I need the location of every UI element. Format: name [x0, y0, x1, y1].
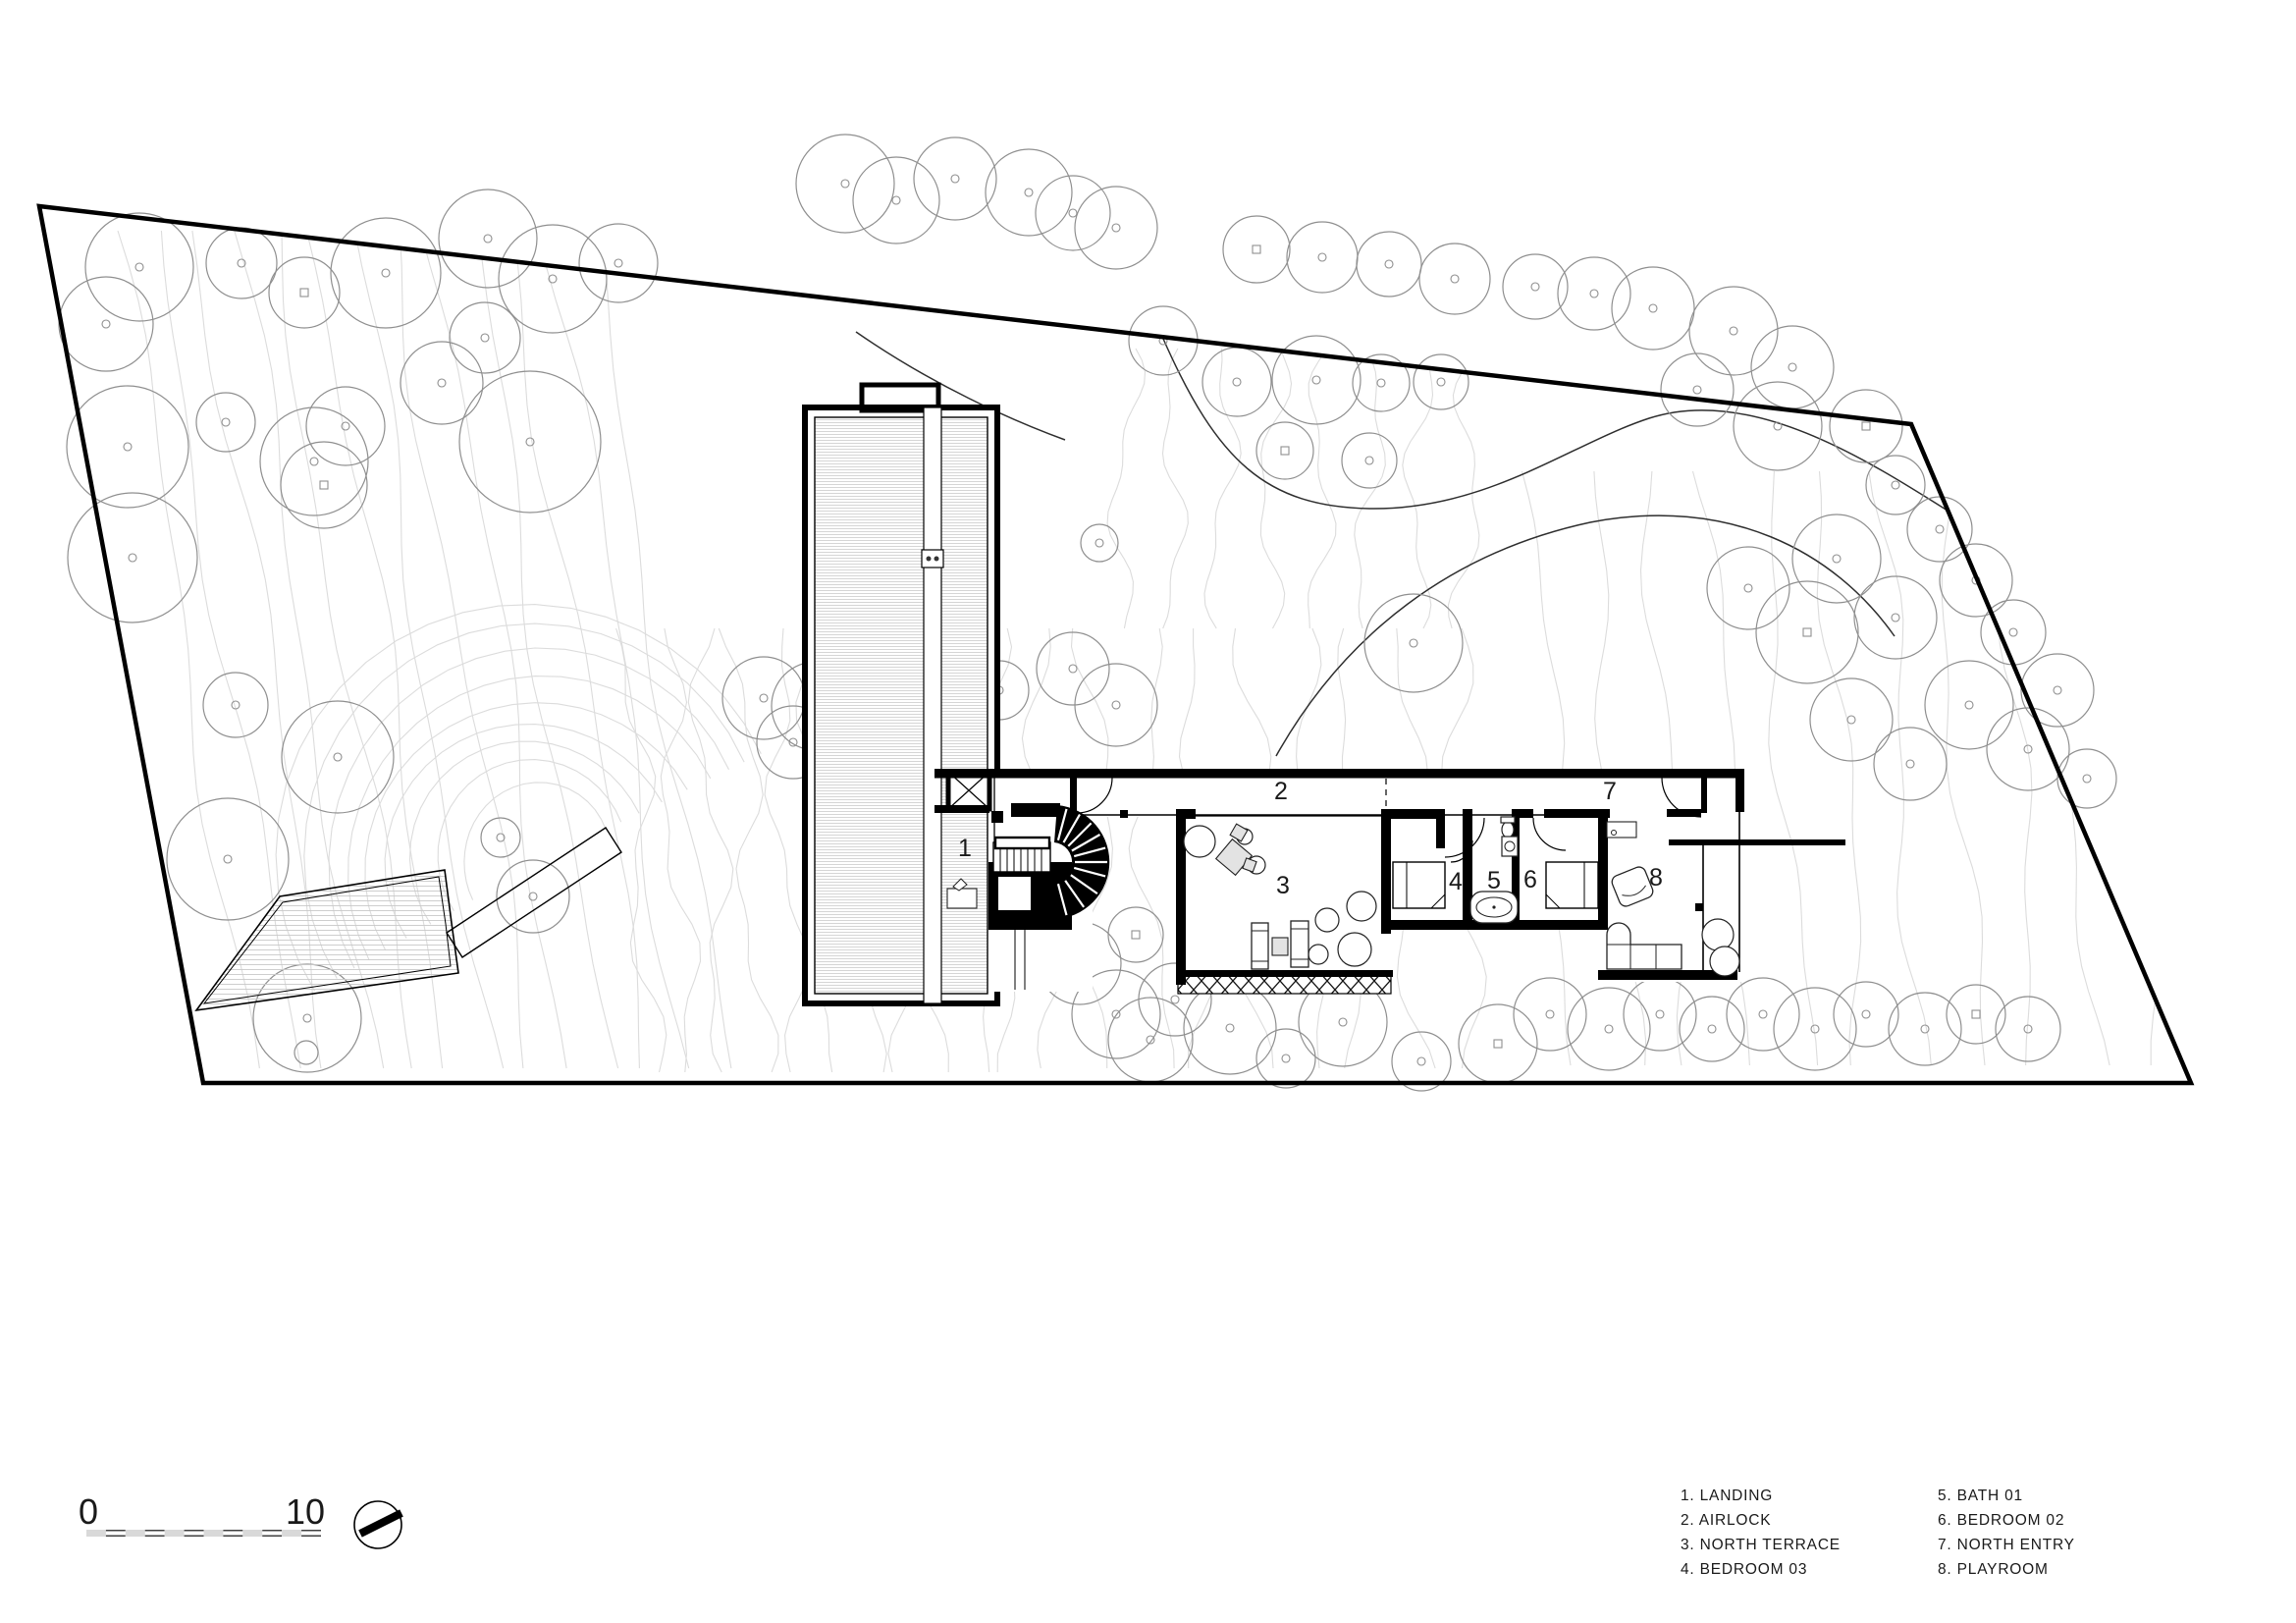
- tree-canopy-circle: [1256, 422, 1313, 479]
- deck-platform: [196, 870, 458, 1010]
- terrace-edge-hatch: [1178, 976, 1391, 994]
- tree-canopy-circle: [1680, 997, 1744, 1061]
- tree-canopy-circle: [2021, 654, 2094, 727]
- tree-canopy-circle: [722, 657, 805, 739]
- tree-canopy-circle: [281, 442, 367, 528]
- tree-canopy-circle: [331, 218, 441, 328]
- tree-canopy-circle: [1925, 661, 2013, 749]
- legend-item-3: 3. NORTH TERRACE: [1681, 1533, 1841, 1557]
- legend-column-1: 1. LANDING2. AIRLOCK3. NORTH TERRACE4. B…: [1681, 1484, 1841, 1582]
- room-number-label: 1: [958, 835, 972, 862]
- tree-canopy-circle: [1075, 187, 1157, 269]
- room-number-label: 2: [1274, 778, 1288, 805]
- vanity: [1502, 837, 1518, 856]
- room-number-label: 6: [1523, 866, 1537, 893]
- tree-canopy-circle: [68, 493, 197, 622]
- tree-canopy-circle: [796, 135, 894, 233]
- tree-canopy-circle: [1661, 353, 1734, 426]
- tree-canopy-circle: [269, 257, 340, 328]
- bean-bag: [1710, 947, 1739, 976]
- tree-canopy-circle: [1612, 267, 1694, 350]
- tree-canopy-circle: [167, 798, 289, 920]
- scale-end-label: 10: [286, 1491, 325, 1532]
- tree-canopy-circle: [1287, 222, 1358, 293]
- plant-pot: [1308, 945, 1328, 964]
- tree-canopy-circle: [203, 673, 268, 737]
- legend-item-6: 6. BEDROOM 02: [1938, 1508, 2075, 1533]
- tree-canopy-circle: [282, 701, 394, 813]
- plant-pot: [1338, 933, 1371, 966]
- tree-canopy-circle: [1756, 581, 1858, 683]
- tree-canopy-circle: [499, 225, 607, 333]
- tree-canopy-circle: [1108, 907, 1163, 962]
- desk: [947, 889, 977, 908]
- room-number-label: 5: [1487, 867, 1501, 894]
- bed: [1546, 862, 1598, 908]
- legend-item-2: 2. AIRLOCK: [1681, 1508, 1841, 1533]
- tree-canopy-circle: [1419, 243, 1490, 314]
- legend-item-4: 4. BEDROOM 03: [1681, 1557, 1841, 1582]
- tree-canopy-circle: [1689, 287, 1778, 375]
- roof-building: [803, 385, 999, 1005]
- entry-mat: [1607, 822, 1636, 838]
- tree-canopy-circle: [196, 393, 255, 452]
- roof-ridge: [924, 407, 941, 1003]
- tree-canopy-circle: [206, 228, 277, 298]
- plant-pot: [1315, 908, 1339, 932]
- tree-canopy-circle: [1792, 514, 1881, 603]
- tree-canopy-circle: [579, 224, 658, 302]
- plant-pot: [1347, 892, 1376, 921]
- scale-start-label: 0: [79, 1491, 98, 1532]
- tree-canopy-circle: [1036, 176, 1110, 250]
- tree-canopy-circle: [1751, 326, 1834, 408]
- tree-canopy-circle: [1866, 456, 1925, 514]
- tree-canopy-circle: [450, 302, 520, 373]
- north-arrow: [354, 1501, 401, 1548]
- tree-canopy-circle: [1907, 497, 1972, 562]
- tree-canopy-circle: [1081, 524, 1118, 562]
- tree-canopy-circle: [1734, 382, 1822, 470]
- tree-canopy-circle: [1568, 988, 1650, 1070]
- legend-item-8: 8. PLAYROOM: [1938, 1557, 2075, 1582]
- lounge-chair: [1291, 921, 1308, 967]
- tree-canopy-circle: [306, 387, 385, 465]
- tree-canopy-circle: [459, 371, 601, 513]
- lounge-chair: [1252, 923, 1268, 969]
- bed: [1393, 862, 1445, 908]
- tree-canopy-circle: [59, 277, 153, 371]
- tree-canopy-circle: [986, 149, 1072, 236]
- room-number-label: 3: [1276, 872, 1290, 899]
- legend-item-1: 1. LANDING: [1681, 1484, 1841, 1508]
- tree-canopy-circle: [439, 189, 537, 288]
- tree-canopy-circle: [1774, 988, 1856, 1070]
- room-number-label: 4: [1449, 868, 1463, 895]
- tree-canopy-circle: [1830, 390, 1902, 462]
- plant-pot: [1184, 826, 1215, 857]
- tree-canopy-circle: [400, 342, 483, 424]
- tree-canopy-circle: [1342, 433, 1397, 488]
- room-number-label: 8: [1649, 864, 1663, 892]
- tree-canopy-circle: [853, 157, 939, 243]
- tree-canopy-circle: [1202, 348, 1271, 416]
- tree-canopy-circle: [1874, 728, 1947, 800]
- tree-canopy-circle: [1459, 1004, 1537, 1083]
- tree-canopy-circle: [1108, 998, 1193, 1082]
- deck-walkway: [447, 828, 621, 957]
- tree-canopy-circle: [1364, 594, 1463, 692]
- room-number-label: 7: [1603, 778, 1617, 805]
- tree-canopy-circle: [1272, 336, 1361, 424]
- tree-canopy-circle: [1834, 982, 1898, 1047]
- house-plan: [934, 769, 1845, 994]
- legend-item-5: 5. BATH 01: [1938, 1484, 2075, 1508]
- tree-canopy-circle: [1707, 547, 1789, 629]
- tree-canopy-circle: [2057, 749, 2116, 808]
- tree-canopy-circle: [1558, 257, 1630, 330]
- legend-column-2: 5. BATH 016. BEDROOM 027. NORTH ENTRY8. …: [1938, 1484, 2075, 1582]
- tree-canopy-circle: [1414, 354, 1468, 409]
- scale-bar: 010: [79, 1491, 325, 1537]
- tree-canopy-circle: [1996, 997, 2060, 1061]
- tree-canopy-circle: [1075, 664, 1157, 746]
- tree-canopy-circle: [1357, 232, 1421, 297]
- side-table: [1272, 938, 1288, 955]
- tree-canopy-circle: [1727, 978, 1799, 1051]
- site-plan-drawing: 12345678010: [0, 0, 2296, 1623]
- tree-canopy-circle: [1624, 978, 1696, 1051]
- bean-bag: [1702, 919, 1734, 950]
- toilet: [1502, 822, 1514, 838]
- deck: [196, 828, 621, 1010]
- tree-canopy-circle: [1223, 216, 1290, 283]
- tree-canopy-circle: [1854, 576, 1937, 659]
- legend-item-7: 7. NORTH ENTRY: [1938, 1533, 2075, 1557]
- tree-canopy-circle: [914, 137, 996, 220]
